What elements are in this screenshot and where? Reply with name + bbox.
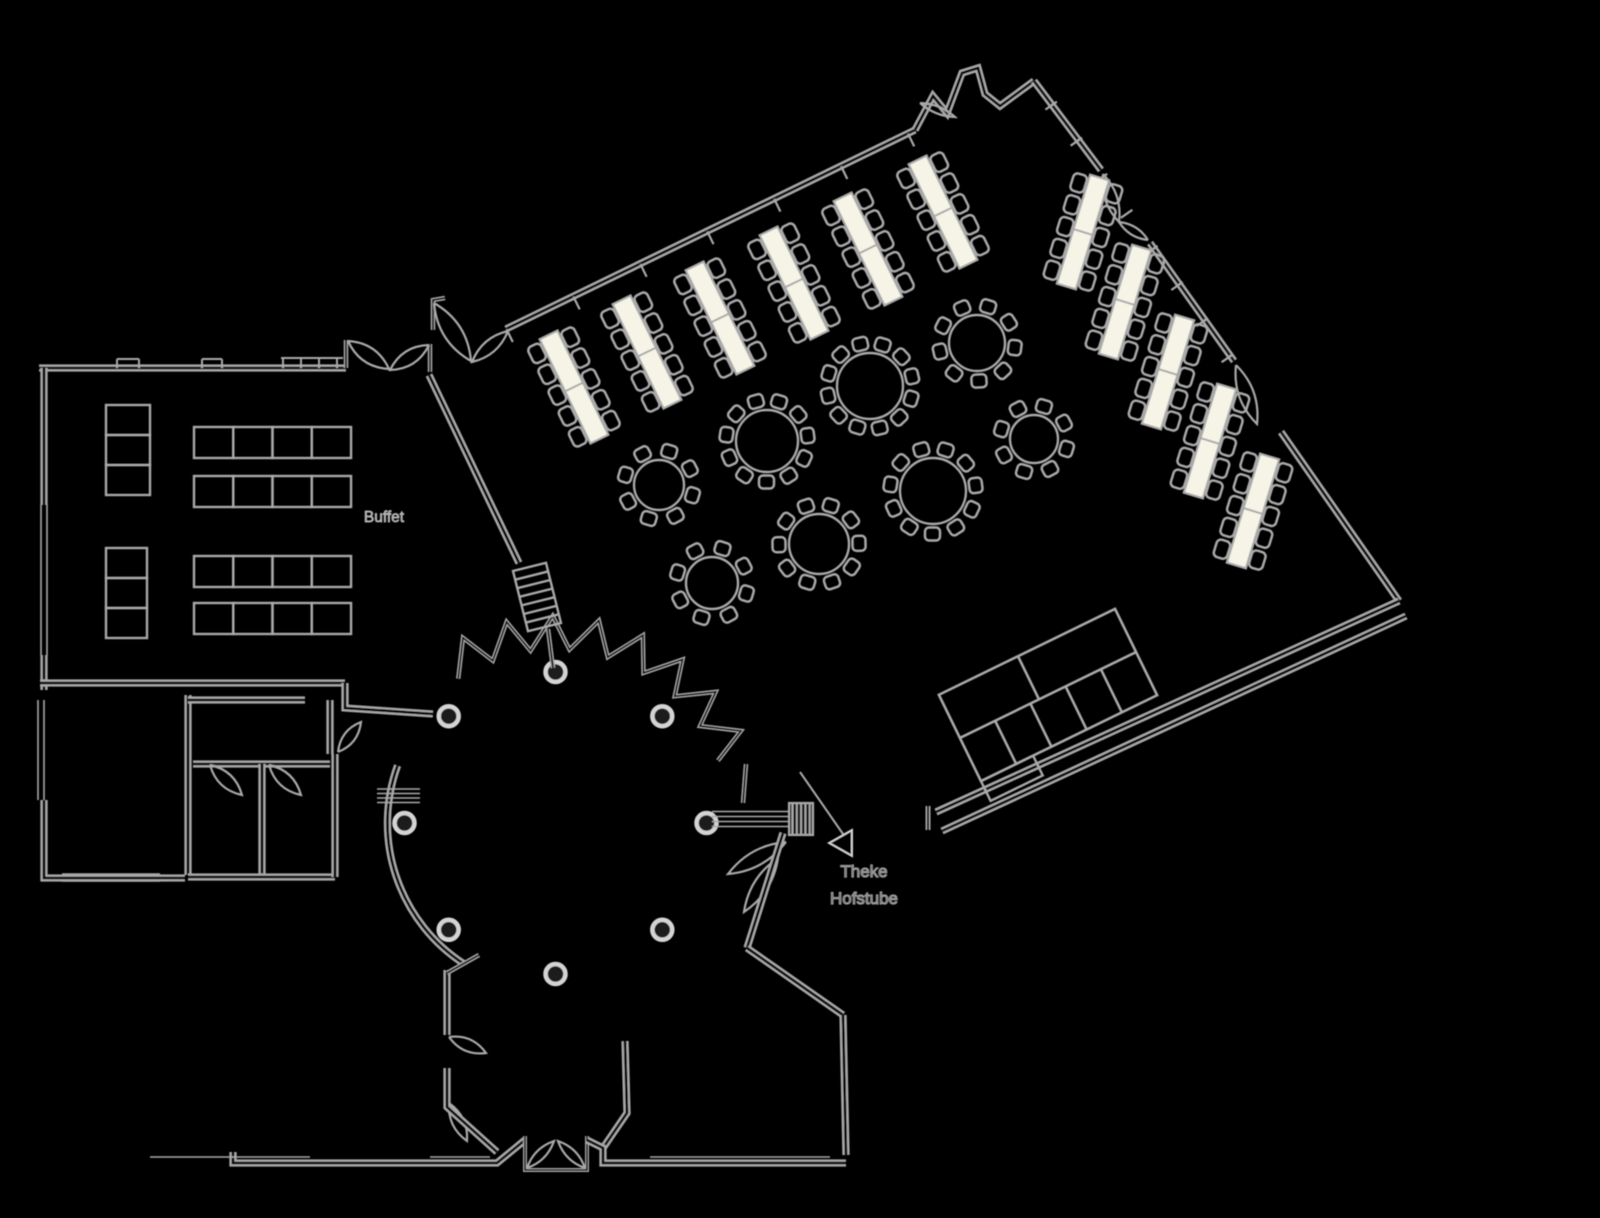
svg-text:Buffet: Buffet — [364, 509, 405, 526]
svg-text:Theke: Theke — [840, 862, 887, 881]
svg-text:Hofstube: Hofstube — [830, 889, 898, 908]
